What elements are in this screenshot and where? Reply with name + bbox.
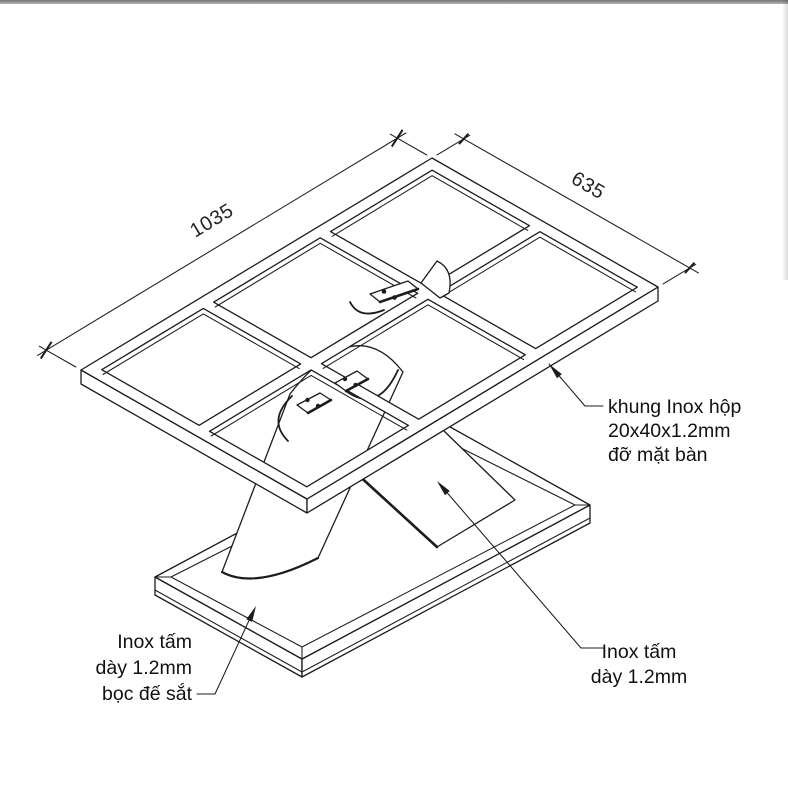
pedestal-top-arc-1 bbox=[350, 302, 384, 314]
bolt-hole bbox=[343, 377, 347, 381]
base-note-line: bọc đế sắt bbox=[102, 682, 193, 705]
drawing-page: 1035 635 khung Inox hộp 20x40x1.2mm đỡ m… bbox=[0, 0, 788, 792]
bolt-hole bbox=[305, 398, 309, 402]
leg-note-line: Inox tấm bbox=[602, 641, 677, 663]
base-note-line: Inox tấm bbox=[117, 631, 192, 653]
leader-frame-note: khung Inox hộp 20x40x1.2mm đỡ mặt bàn bbox=[549, 364, 742, 466]
frame-top-face bbox=[81, 158, 658, 499]
bolt-hole bbox=[353, 383, 357, 387]
bolt-hole bbox=[392, 295, 397, 300]
frame-note-line: đỡ mặt bàn bbox=[608, 444, 708, 466]
dimension-length-value: 1035 bbox=[186, 199, 237, 242]
frame-note-line: khung Inox hộp bbox=[608, 396, 742, 418]
frame-note-line: 20x40x1.2mm bbox=[608, 420, 730, 442]
technical-drawing: 1035 635 khung Inox hộp 20x40x1.2mm đỡ m… bbox=[0, 0, 788, 792]
leg-note-line: dày 1.2mm bbox=[591, 666, 687, 688]
bolt-hole bbox=[382, 289, 387, 294]
base-note-line: dày 1.2mm bbox=[96, 657, 192, 679]
bolt-hole bbox=[316, 404, 320, 408]
table-frame bbox=[81, 158, 658, 513]
dimension-width-value: 635 bbox=[567, 168, 608, 204]
leader-line bbox=[549, 364, 603, 406]
